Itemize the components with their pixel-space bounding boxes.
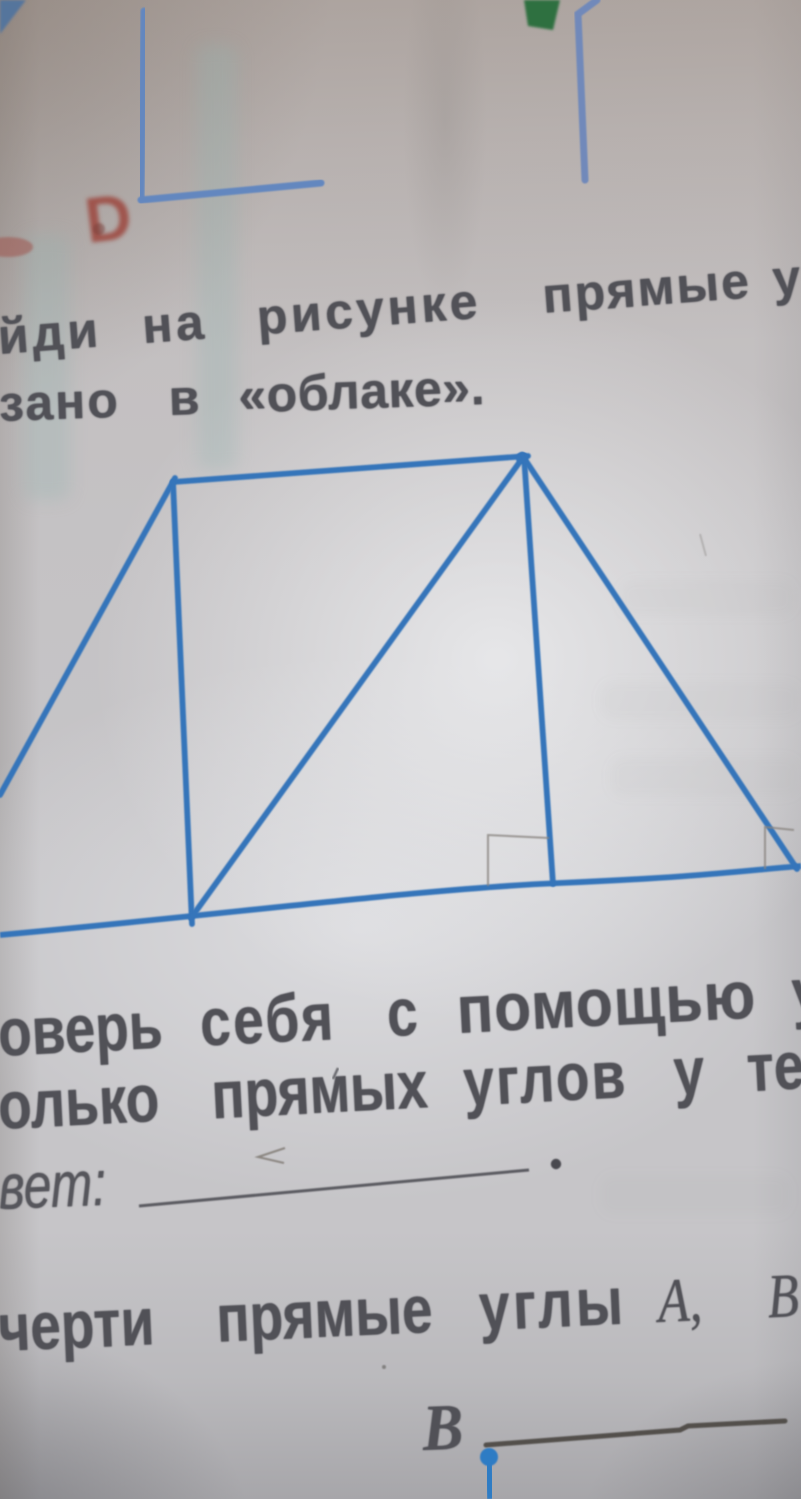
svg-text:D: D (81, 180, 136, 257)
